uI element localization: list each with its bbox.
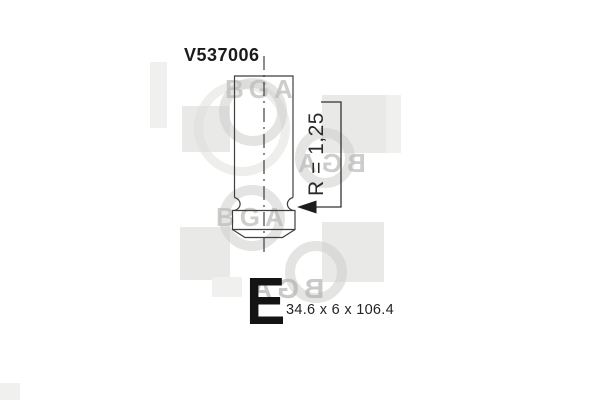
valve-groove-right	[287, 198, 293, 211]
radius-arrow-icon	[297, 201, 317, 214]
catalog-image: BGA BGA BGA BGA V537006 R = 1,25 E 34.6 …	[0, 0, 600, 400]
valve-head-face	[233, 230, 296, 238]
part-dimensions: 34.6 x 6 x 106.4	[286, 302, 394, 318]
valve-groove-left	[235, 198, 241, 211]
valve-drawing	[0, 0, 600, 400]
part-number: V537006	[184, 45, 260, 66]
valve-type-letter: E	[246, 268, 285, 335]
radius-dimension-label: R = 1,25	[305, 112, 329, 196]
